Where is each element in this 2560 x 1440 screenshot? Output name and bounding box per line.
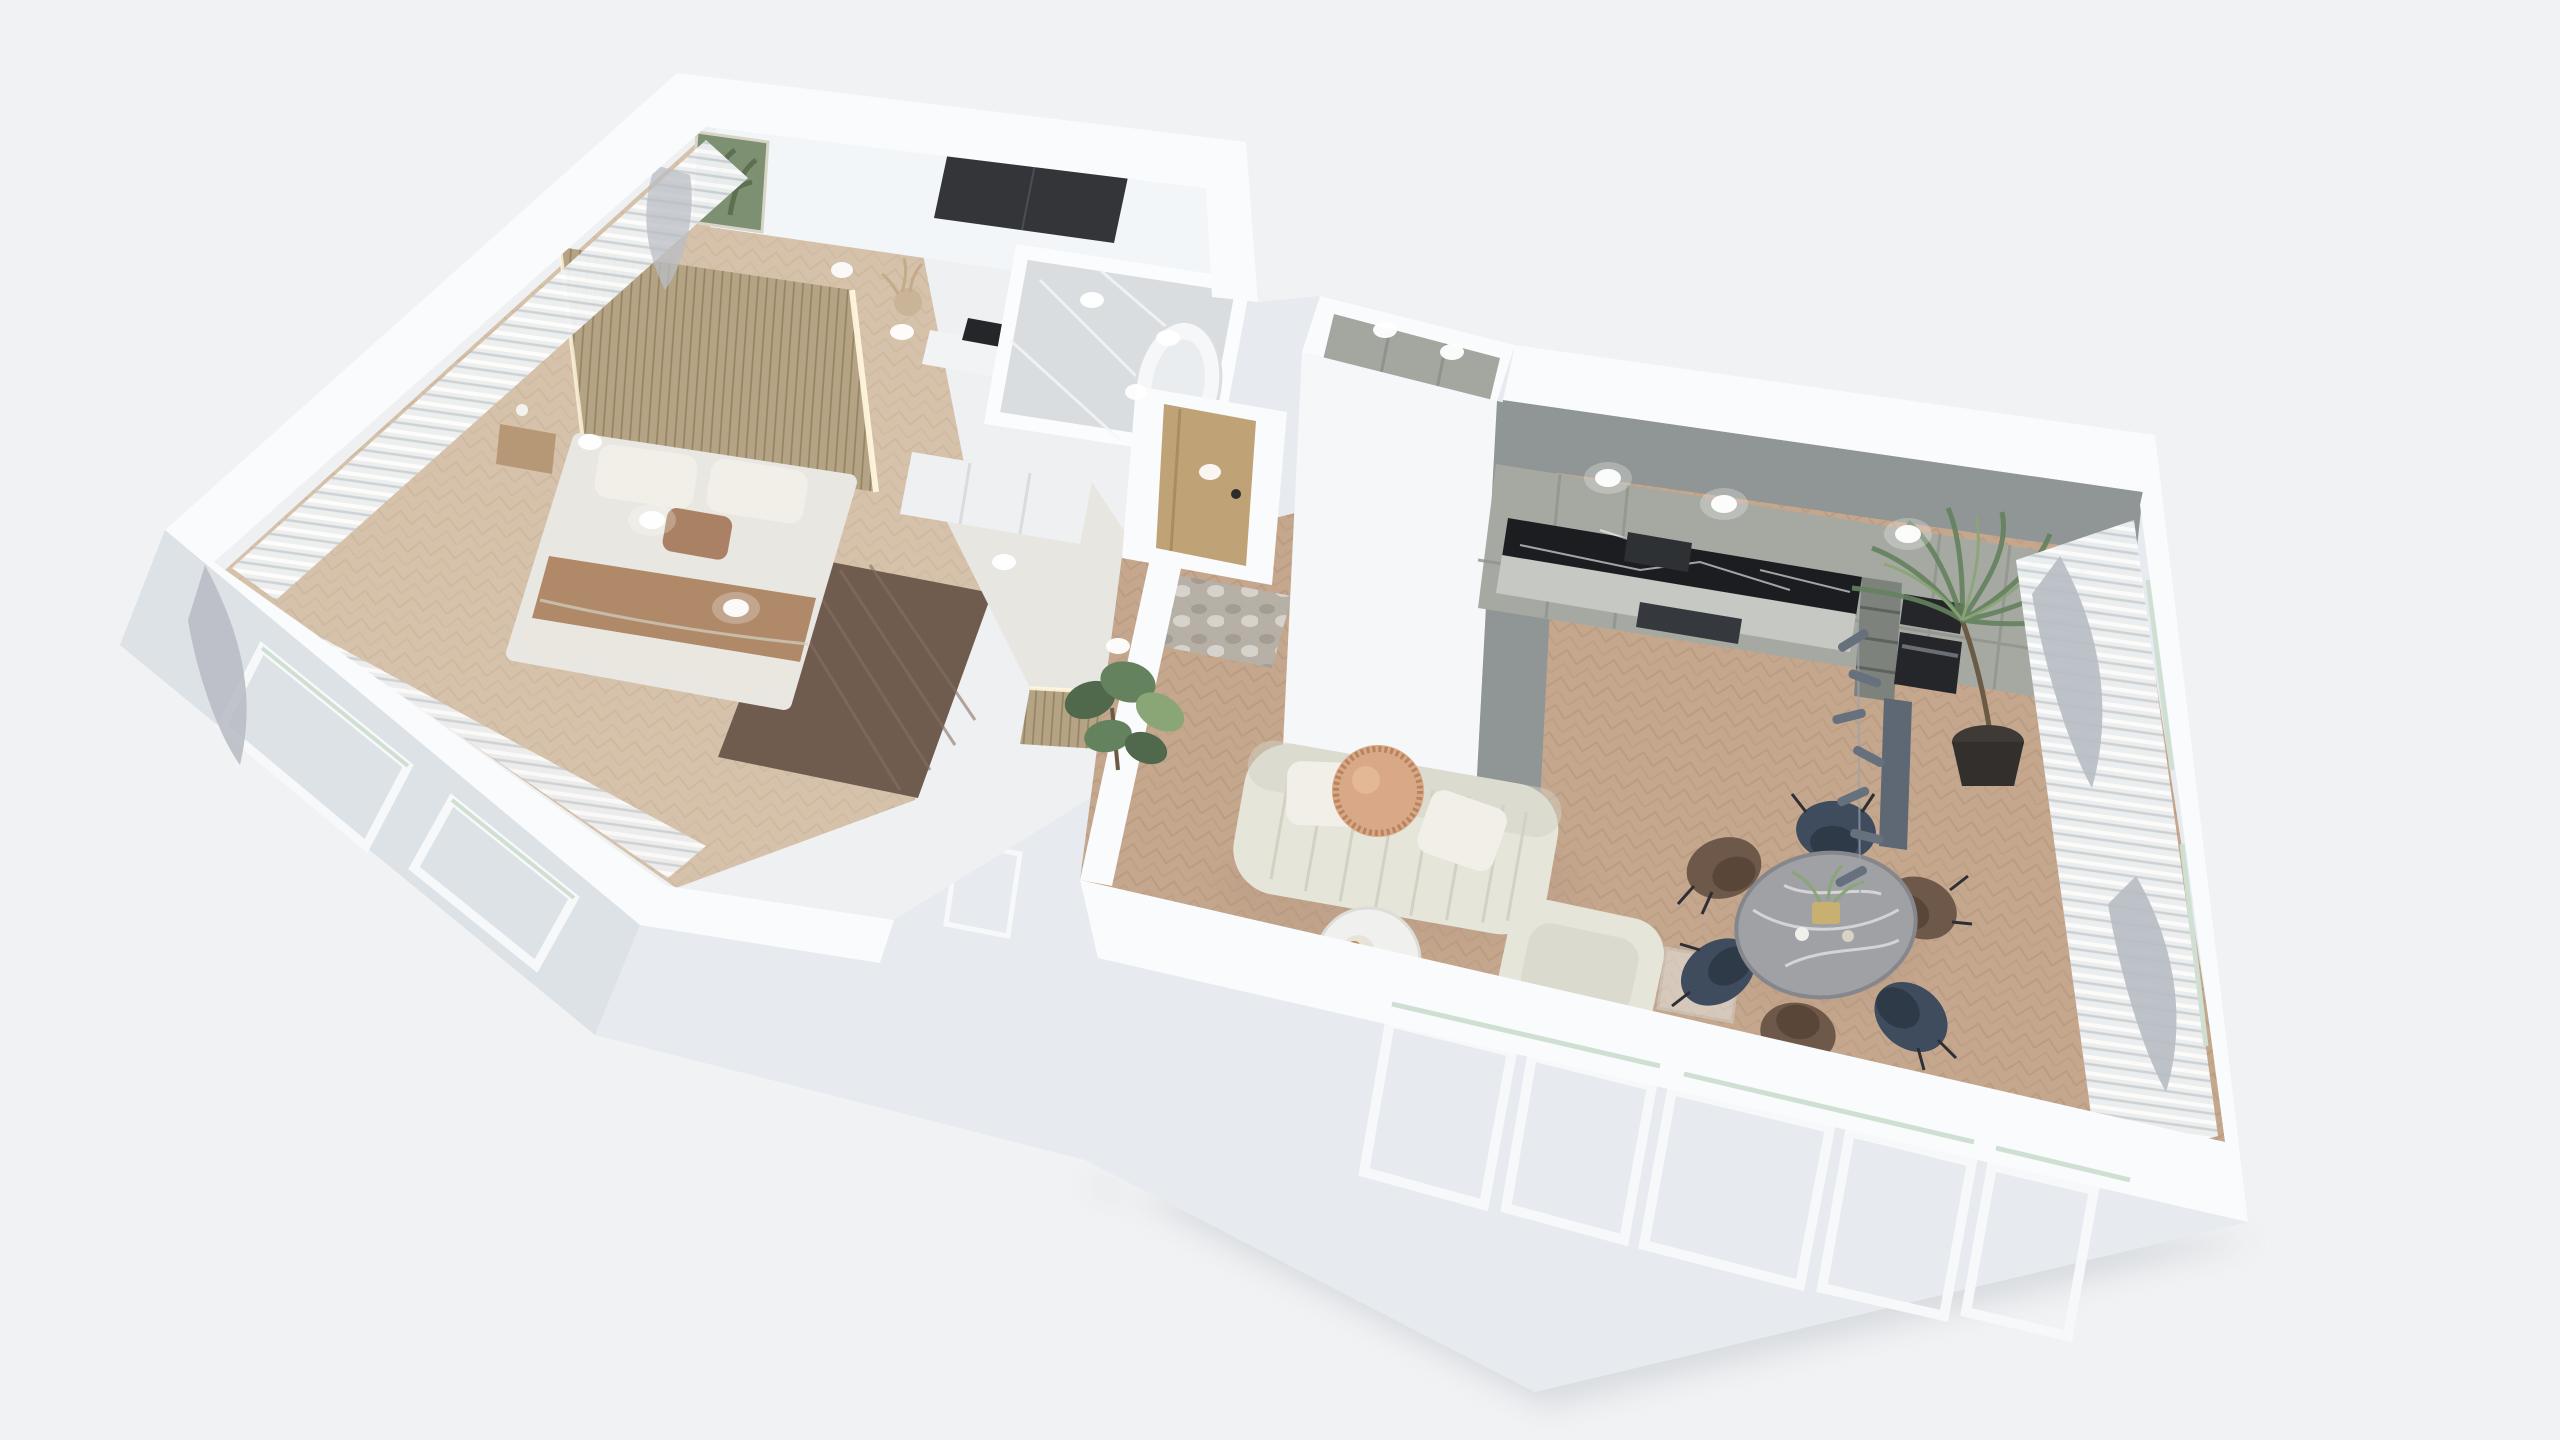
tan-side-table — [1332, 745, 1424, 837]
living-block — [1059, 296, 2248, 1392]
floor-plan-svg — [0, 0, 2560, 1440]
bed — [514, 441, 849, 702]
bedside-lamp — [516, 404, 528, 416]
oven — [1894, 632, 1962, 694]
palm-planter — [1952, 725, 2024, 786]
door-handle — [1231, 489, 1241, 499]
floor-plan-render — [0, 0, 2560, 1440]
entry-door — [1156, 404, 1256, 566]
